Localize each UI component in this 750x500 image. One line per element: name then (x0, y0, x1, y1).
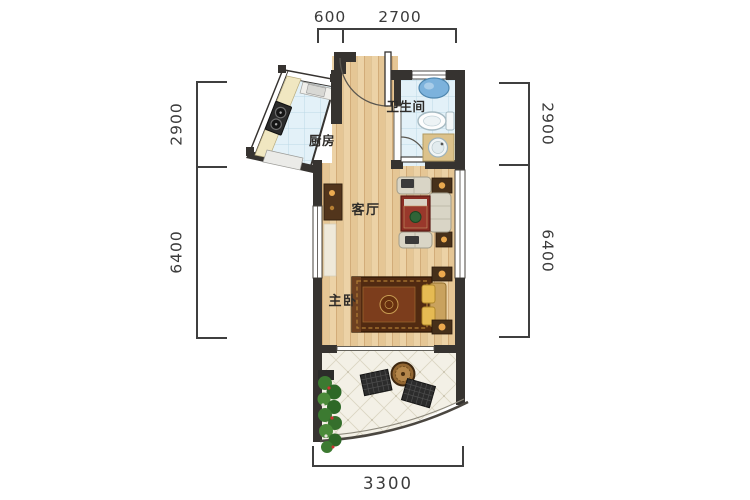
room-label-living: 客厅 (351, 202, 380, 218)
dim-left-2900: 2900 (167, 102, 185, 145)
dim-bottom-3300: 3300 (363, 474, 413, 493)
dim-top-2700: 2700 (378, 8, 421, 26)
lamp-glow (439, 182, 445, 188)
curtain-strip (324, 224, 336, 276)
floor-plan-page: 600 2700 2900 6400 2900 6400 3300 (0, 0, 750, 500)
room-label-bedroom: 主卧 (328, 293, 357, 309)
dim-top-600: 600 (314, 8, 347, 26)
pillow (422, 285, 435, 303)
wall-hall-kitchen (331, 70, 342, 124)
wall-right-upper (455, 70, 465, 170)
wall-entry-top (340, 52, 356, 62)
dim-right-2900: 2900 (539, 102, 557, 145)
toilet (418, 112, 454, 130)
washbasin (423, 134, 454, 161)
lamp-glow (439, 271, 446, 278)
wall-divider-left (313, 345, 337, 353)
room-label-kitchen: 厨房 (309, 133, 335, 148)
lamp-glow (441, 237, 447, 243)
lamp-glow (439, 324, 446, 331)
floor-plan-canvas: 600 2700 2900 6400 2900 6400 3300 (0, 0, 750, 500)
bathroom-fixtures (418, 78, 454, 161)
dim-left-6400: 6400 (167, 230, 185, 273)
wall-right-mid (455, 278, 465, 350)
wall-post (278, 65, 286, 73)
hall-cabinet (324, 184, 342, 220)
corner-basin-highlight (424, 83, 434, 90)
wall-divider-right (434, 345, 456, 353)
wall-partition-bath (394, 106, 401, 163)
room-label-bathroom: 卫生间 (386, 99, 425, 114)
bathroom-door-leaf (401, 157, 426, 162)
cabinet-lamp-glow (330, 206, 334, 210)
dim-right-6400: 6400 (539, 229, 557, 272)
corner-basin (419, 78, 449, 98)
entry-door-leaf (385, 52, 391, 106)
wall-left-upper (313, 160, 322, 206)
balcony-sliding-window (337, 347, 434, 351)
bedroom-furniture (352, 267, 452, 334)
wall-post (246, 147, 254, 156)
coffee-table-rug (401, 196, 430, 231)
cabinet-lamp-glow (329, 190, 335, 196)
wall-balcony-right (456, 350, 465, 405)
